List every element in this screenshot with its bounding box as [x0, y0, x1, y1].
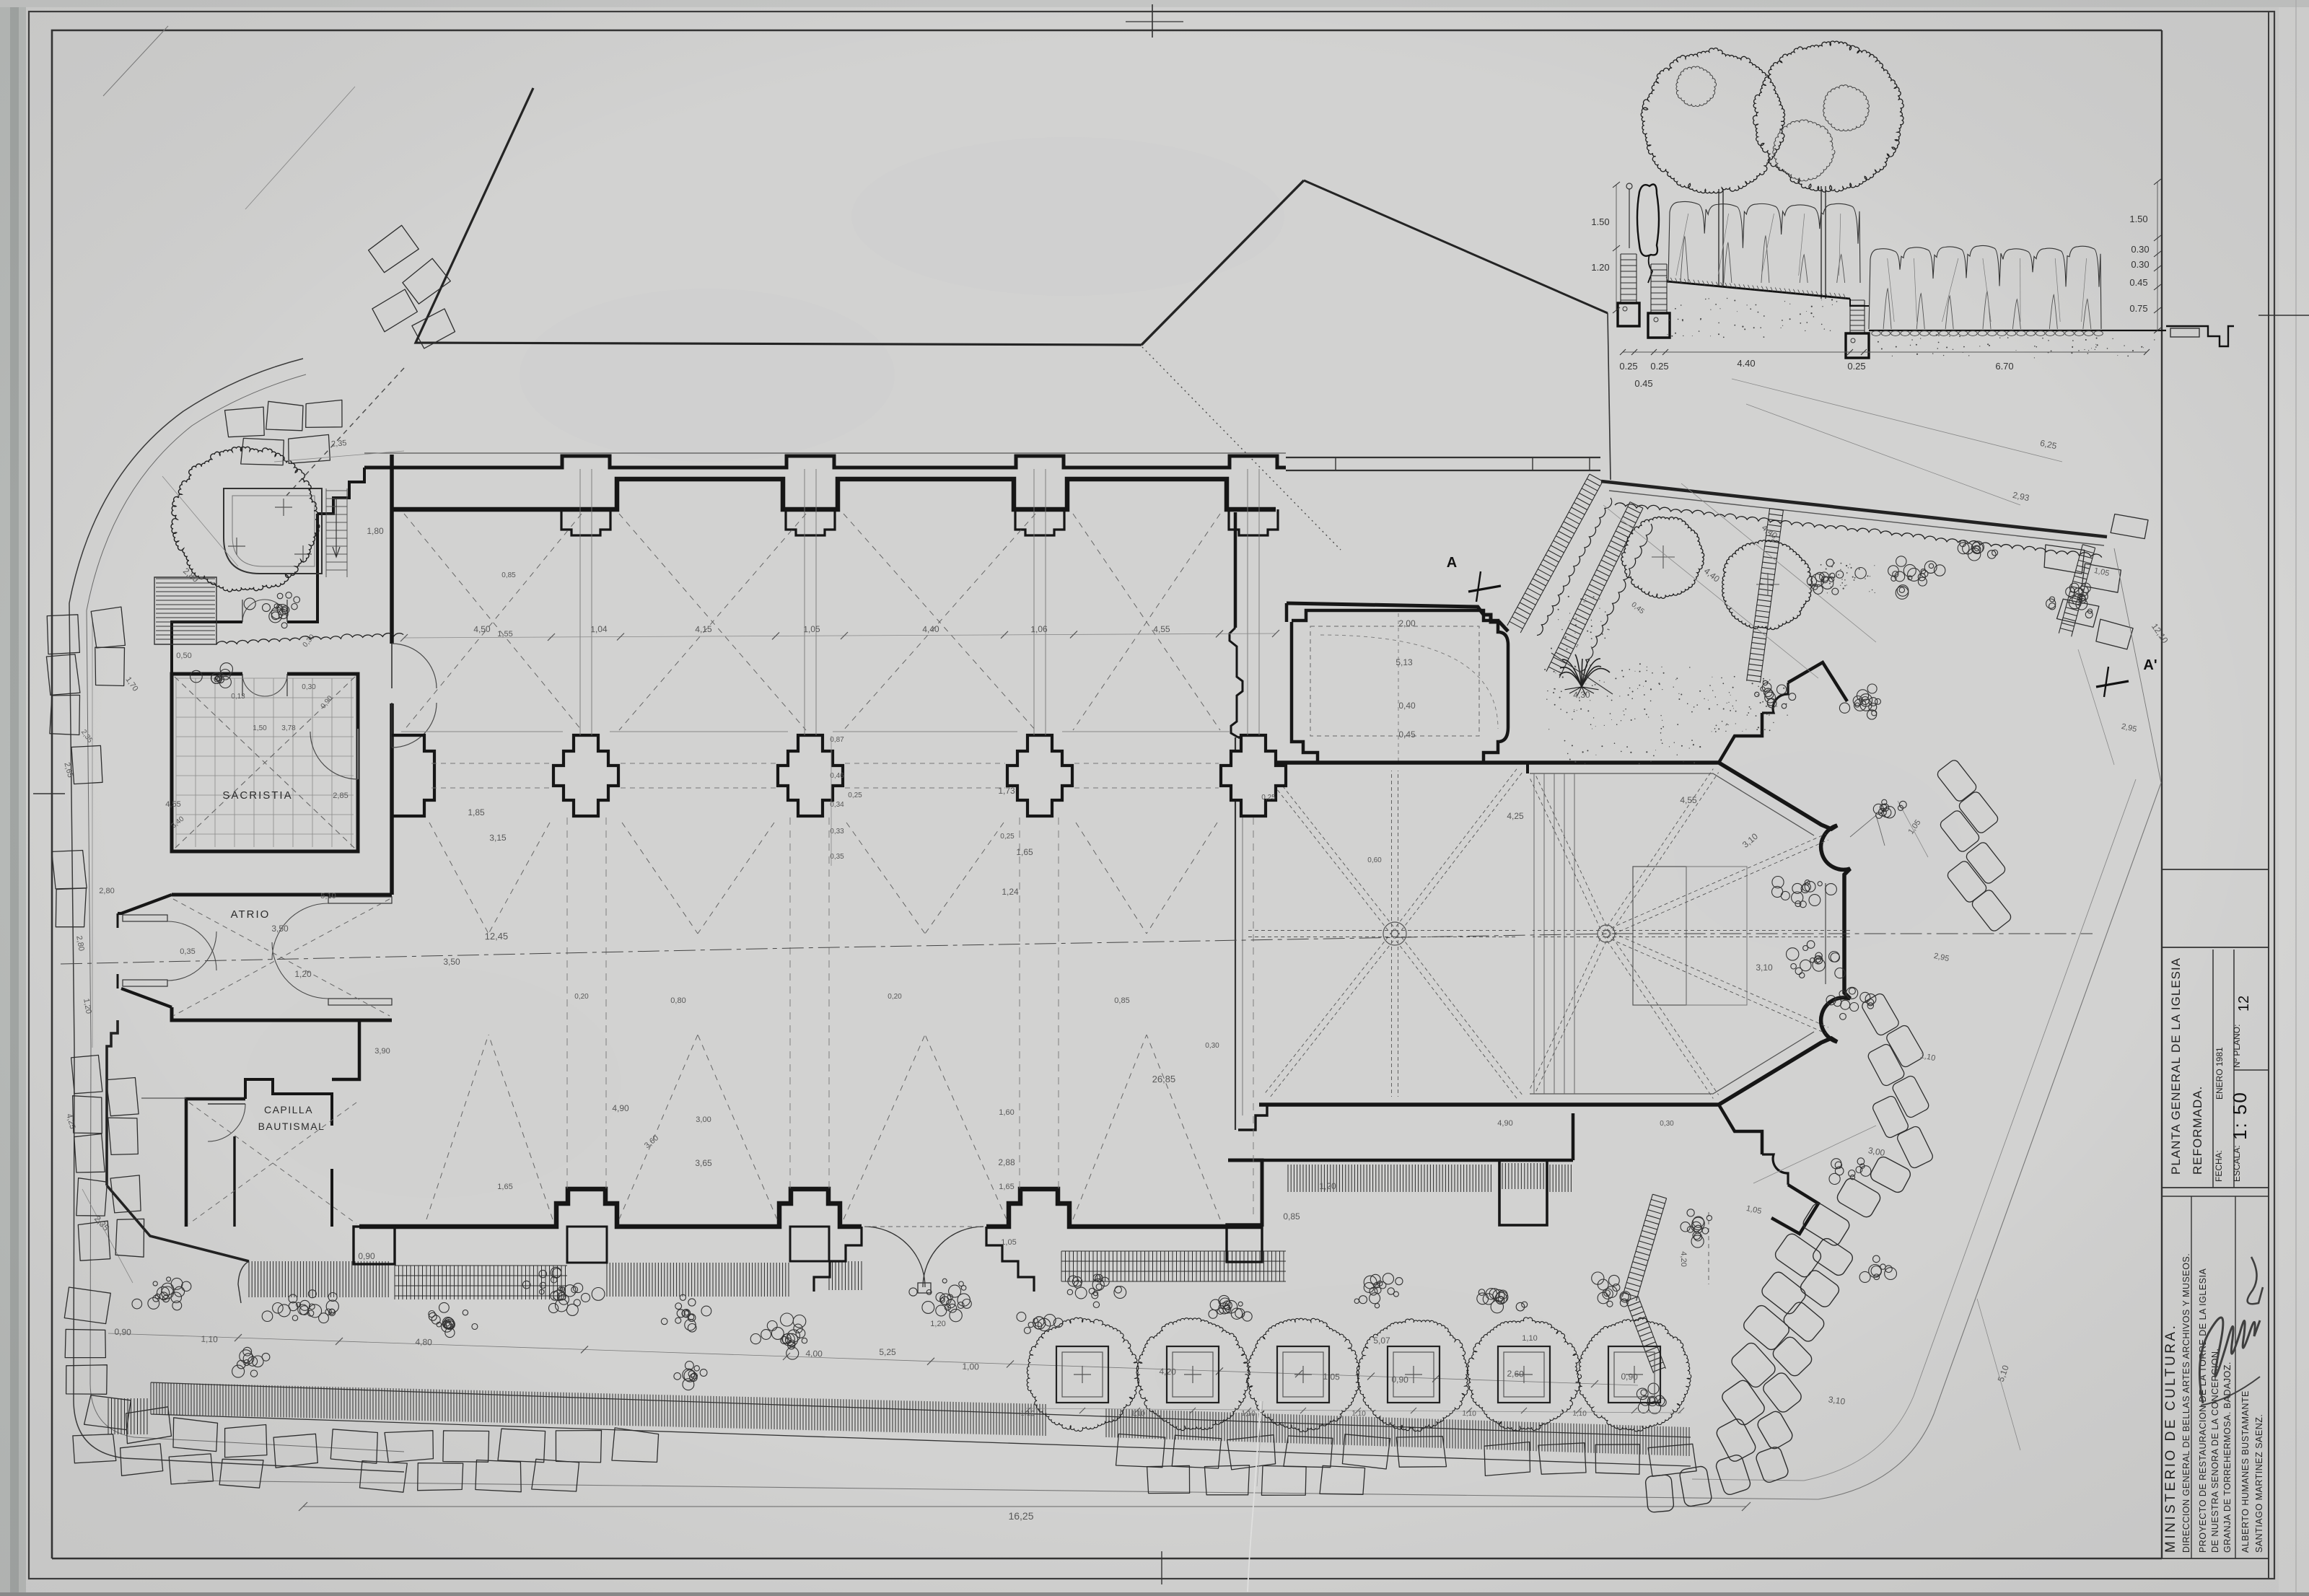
svg-text:2,35: 2,35 [331, 439, 347, 448]
svg-text:5,07: 5,07 [1373, 1336, 1390, 1346]
svg-text:12: 12 [2236, 996, 2252, 1012]
svg-text:1,20: 1,20 [930, 1320, 945, 1328]
svg-text:4,55: 4,55 [165, 800, 180, 809]
svg-text:0,35: 0,35 [180, 947, 195, 956]
svg-text:1,10: 1,10 [201, 1334, 218, 1345]
svg-text:4.40: 4.40 [1737, 358, 1755, 369]
svg-text:SACRISTIA: SACRISTIA [222, 789, 292, 802]
svg-text:0.75: 0.75 [2129, 303, 2147, 314]
svg-text:1.50: 1.50 [1591, 216, 1609, 227]
svg-text:ATRIO: ATRIO [231, 908, 271, 921]
svg-text:2,60: 2,60 [1507, 1369, 1524, 1380]
svg-text:1: 50: 1: 50 [2229, 1091, 2251, 1140]
svg-text:0,20: 0,20 [574, 993, 589, 1001]
svg-text:4,20: 4,20 [1679, 1251, 1688, 1266]
svg-text:2,80: 2,80 [99, 887, 114, 895]
svg-text:DIRECCION GENERAL DE BELLAS: DIRECCION GENERAL DE BELLAS ARTES ARCHIV… [2181, 1253, 2191, 1553]
svg-text:A': A' [2143, 657, 2157, 673]
svg-text:5,25: 5,25 [879, 1347, 896, 1357]
svg-text:0,35: 0,35 [830, 853, 844, 861]
svg-text:0,90: 0,90 [358, 1251, 375, 1261]
svg-text:3,90: 3,90 [374, 1047, 390, 1056]
svg-text:1.20: 1.20 [1591, 262, 1609, 273]
svg-text:0,30: 0,30 [302, 683, 316, 691]
svg-text:3,15: 3,15 [489, 833, 507, 843]
svg-text:16,25: 16,25 [1008, 1510, 1033, 1522]
svg-text:0,25: 0,25 [1261, 794, 1276, 802]
svg-text:4,15: 4,15 [695, 624, 712, 634]
svg-text:3,78: 3,78 [281, 724, 296, 732]
svg-text:4,30: 4,30 [1573, 690, 1590, 700]
svg-text:1,05: 1,05 [1001, 1238, 1016, 1247]
svg-text:0,90: 0,90 [1391, 1374, 1408, 1385]
svg-text:0,46: 0,46 [830, 772, 844, 780]
svg-text:4,00: 4,00 [805, 1349, 823, 1359]
svg-text:0,30: 0,30 [1205, 1042, 1219, 1050]
svg-text:1,20: 1,20 [294, 969, 312, 979]
svg-text:0.45: 0.45 [1634, 378, 1652, 389]
svg-text:1,80: 1,80 [367, 526, 384, 536]
svg-text:SANTIAGO MARTINEZ SAENZ.: SANTIAGO MARTINEZ SAENZ. [2254, 1414, 2264, 1553]
svg-text:0,40: 0,40 [1398, 701, 1416, 711]
svg-text:0,80: 0,80 [670, 996, 685, 1005]
svg-text:0.45: 0.45 [2129, 277, 2147, 288]
svg-text:CAPILLA: CAPILLA [264, 1104, 313, 1115]
svg-text:4,20: 4,20 [1159, 1367, 1176, 1377]
svg-text:2,85: 2,85 [333, 792, 348, 800]
svg-text:1,65: 1,65 [1016, 847, 1033, 857]
svg-text:PLANTA GENERAL DE LA IGLESIA: PLANTA GENERAL DE LA IGLESIA [2169, 957, 2183, 1175]
svg-text:REFORMADA.: REFORMADA. [2191, 1086, 2204, 1175]
svg-text:1,73: 1,73 [998, 786, 1015, 796]
svg-text:0,87: 0,87 [830, 736, 844, 744]
svg-text:0.25: 0.25 [1619, 361, 1637, 372]
svg-text:4,80: 4,80 [415, 1337, 432, 1348]
svg-text:26,85: 26,85 [1152, 1074, 1176, 1085]
svg-text:0,60: 0,60 [1367, 856, 1382, 864]
svg-text:1,10: 1,10 [1522, 1334, 1537, 1343]
svg-text:1,10: 1,10 [1131, 1410, 1145, 1419]
svg-text:0,30: 0,30 [1660, 1120, 1674, 1128]
svg-text:1,05: 1,05 [803, 624, 820, 634]
svg-text:0,33: 0,33 [830, 828, 844, 836]
svg-text:1,10: 1,10 [1020, 1410, 1035, 1419]
svg-text:ESCALA:: ESCALA: [2232, 1145, 2242, 1182]
svg-text:1,85: 1,85 [468, 807, 485, 817]
svg-text:1,24: 1,24 [1002, 887, 1019, 897]
svg-text:3,50: 3,50 [271, 924, 289, 934]
svg-text:0,90: 0,90 [114, 1327, 131, 1338]
svg-text:A: A [1447, 555, 1457, 571]
svg-text:1,10: 1,10 [1241, 1410, 1256, 1419]
svg-text:6.70: 6.70 [1995, 361, 2013, 372]
svg-text:MINISTERIO DE CULTURA.: MINISTERIO DE CULTURA. [2163, 1323, 2178, 1553]
svg-text:FECHA:: FECHA: [2214, 1150, 2224, 1182]
svg-text:0.30: 0.30 [2131, 259, 2149, 270]
svg-text:1,00: 1,00 [962, 1362, 979, 1372]
svg-text:4,50: 4,50 [473, 624, 491, 634]
svg-text:1,20: 1,20 [1319, 1181, 1336, 1191]
svg-text:0,85: 0,85 [1114, 996, 1129, 1005]
svg-text:4,40: 4,40 [922, 624, 939, 634]
svg-text:1,55: 1,55 [497, 630, 512, 639]
svg-text:0,25: 0,25 [1000, 833, 1015, 841]
svg-text:1,04: 1,04 [590, 624, 608, 634]
svg-text:0,45: 0,45 [1398, 729, 1416, 740]
svg-text:1,10: 1,10 [1572, 1410, 1587, 1419]
svg-text:2,00: 2,00 [1398, 618, 1416, 628]
svg-text:4,90: 4,90 [1497, 1119, 1512, 1128]
svg-text:4,55: 4,55 [1680, 795, 1697, 805]
svg-text:1,10: 1,10 [1351, 1410, 1366, 1419]
svg-text:ENERO 1981: ENERO 1981 [2214, 1047, 2225, 1100]
svg-text:3,50: 3,50 [443, 957, 460, 967]
svg-text:3,65: 3,65 [695, 1158, 712, 1168]
svg-text:0.25: 0.25 [1650, 361, 1668, 372]
svg-text:4,55: 4,55 [1153, 624, 1170, 634]
svg-text:1,65: 1,65 [497, 1183, 512, 1191]
svg-text:5,13: 5,13 [1396, 657, 1413, 667]
svg-text:3,00: 3,00 [696, 1115, 711, 1124]
svg-text:GRANJA DE TORREHERMOSA.: GRANJA DE TORREHERMOSA. BADAJOZ. [2222, 1362, 2233, 1553]
svg-text:4,25: 4,25 [1507, 811, 1524, 821]
svg-text:ALBERTO HUMANES BUSTAMANT: ALBERTO HUMANES BUSTAMANTE [2240, 1390, 2251, 1553]
svg-text:1.50: 1.50 [2129, 214, 2147, 224]
svg-text:PROYECTO DE RESTAURACION DE: PROYECTO DE RESTAURACION DE LA TORRE DE … [2198, 1268, 2208, 1553]
svg-text:0,34: 0,34 [830, 801, 844, 809]
svg-text:0,25: 0,25 [848, 792, 862, 799]
svg-text:2,88: 2,88 [998, 1157, 1015, 1167]
svg-text:1,10: 1,10 [1462, 1410, 1476, 1419]
svg-text:0,20: 0,20 [888, 993, 902, 1001]
svg-text:1,05: 1,05 [1323, 1372, 1340, 1382]
svg-text:0,13: 0,13 [231, 693, 245, 701]
svg-text:1,50: 1,50 [253, 724, 267, 732]
svg-text:1,06: 1,06 [1030, 624, 1048, 634]
svg-text:BAUTISMAL: BAUTISMAL [258, 1121, 325, 1132]
svg-text:12,45: 12,45 [485, 931, 509, 942]
svg-text:0,85: 0,85 [1283, 1211, 1300, 1222]
svg-text:0,85: 0,85 [501, 571, 516, 579]
svg-text:5,10: 5,10 [320, 892, 336, 900]
svg-text:0,50: 0,50 [176, 652, 191, 660]
svg-text:3,10: 3,10 [1756, 963, 1773, 973]
svg-text:1,65: 1,65 [999, 1183, 1014, 1191]
svg-text:1,60: 1,60 [999, 1108, 1014, 1117]
svg-text:0.30: 0.30 [2131, 244, 2149, 255]
svg-text:Nº PLANO:: Nº PLANO: [2232, 1025, 2242, 1068]
svg-text:4,90: 4,90 [612, 1103, 629, 1113]
svg-text:0,90: 0,90 [1621, 1372, 1638, 1382]
svg-text:0.25: 0.25 [1847, 361, 1865, 372]
svg-text:DE NUESTRA SENORA DE LA C: DE NUESTRA SENORA DE LA CONCEPCION. [2210, 1348, 2220, 1553]
